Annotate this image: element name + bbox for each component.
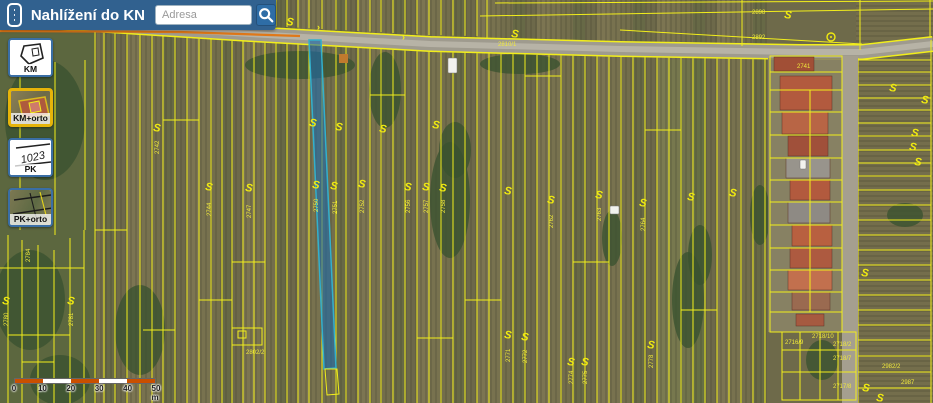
layer-label: KM+orto: [11, 113, 50, 124]
app-window: ››SSSSSSSSSSSSSSSSSSSSSSSSSSSSSSSSSSSSS2…: [0, 0, 933, 403]
parcel-number: 2718/7: [833, 356, 852, 362]
scale-label: 10: [38, 384, 47, 393]
search-button[interactable]: [256, 4, 276, 26]
header-bar: Nahlížení do KN: [0, 0, 276, 30]
building-roof: [790, 248, 832, 268]
vehicle: [610, 206, 619, 214]
shed: [339, 54, 348, 63]
parcel-number: 2775: [583, 370, 589, 384]
app-title: Nahlížení do KN: [31, 7, 145, 24]
scale-label: 20: [66, 384, 75, 393]
parcel-number: 2764: [641, 217, 647, 231]
parcel-number: 2772: [523, 349, 529, 363]
layer-button-km-orto[interactable]: KM+orto: [8, 88, 53, 127]
parcel-number: 2718/2: [833, 342, 852, 348]
scale-label: 50 m: [152, 384, 161, 402]
address-search-input[interactable]: [155, 5, 252, 25]
layer-label: KM: [10, 64, 51, 75]
scale-bar: 01020304050 m: [14, 378, 156, 395]
layer-button-pk-orto[interactable]: PK+orto: [8, 188, 53, 227]
parcel-number: 2756: [406, 199, 412, 213]
parcel-number: 2717/8: [833, 384, 852, 390]
parcel-number: 2802/2: [246, 350, 265, 356]
scale-segment: [99, 379, 127, 383]
svg-text:›: ›: [317, 22, 320, 32]
scale-label: 30: [95, 384, 104, 393]
parcel-number: 2780: [4, 312, 10, 326]
scale-label: 0: [12, 384, 16, 393]
parcel-number: 2742: [155, 140, 161, 154]
menu-button[interactable]: [7, 3, 22, 27]
parcel-number: 2771: [506, 348, 512, 362]
parcel-number: 2763: [597, 207, 603, 221]
parcel-number: 2892: [752, 35, 766, 41]
scale-bar-labels: 01020304050 m: [14, 384, 156, 395]
building-roof: [780, 76, 832, 110]
parcel-number: 2752: [360, 199, 366, 213]
parcel-number: 2716/9: [785, 340, 804, 346]
scale-segment: [71, 379, 99, 383]
parcel-number: 2741: [797, 64, 811, 70]
building-roof: [796, 314, 824, 326]
vehicle: [448, 58, 457, 73]
building-roof: [792, 225, 832, 246]
scale-label: 40: [123, 384, 132, 393]
parcel-number: 2750: [314, 198, 320, 212]
parcel-number: 2758: [441, 199, 447, 213]
parcel-number: 2747: [247, 204, 253, 218]
scale-segment: [15, 379, 43, 383]
map-canvas[interactable]: ››SSSSSSSSSSSSSSSSSSSSSSSSSSSSSSSSSSSSS2…: [0, 0, 933, 403]
parcel-number: 2784: [26, 248, 32, 262]
parcel-number: 2774: [569, 370, 575, 384]
parcel-number: 2778: [649, 354, 655, 368]
parcel-number: 2810/1: [498, 42, 517, 48]
parcel-number: 2898: [752, 10, 766, 16]
building-roof: [792, 292, 830, 310]
vehicle: [800, 160, 806, 169]
layer-button-pk[interactable]: 1023 PK: [8, 138, 53, 177]
parcel-number: 2744: [207, 202, 213, 216]
building-roof: [788, 202, 830, 223]
parcel-number: 2718/10: [812, 334, 834, 340]
building-roof: [788, 136, 828, 156]
parcel-number: 2751: [333, 200, 339, 214]
layer-button-km[interactable]: KM: [8, 38, 53, 77]
parcel-number: 2987: [901, 380, 915, 386]
scale-segment: [127, 379, 155, 383]
parcel-number: 2982/2: [882, 364, 901, 370]
layer-switcher: KM KM+orto 1023 PK: [8, 38, 53, 227]
building-roof: [786, 158, 830, 178]
search-icon: [257, 6, 275, 24]
scale-segment: [43, 379, 71, 383]
layer-label: PK: [10, 164, 51, 175]
layer-label: PK+orto: [10, 214, 51, 225]
building-roof: [782, 112, 828, 134]
parcel-number: 2781: [69, 312, 75, 326]
parcel-number: 2762: [549, 214, 555, 228]
parcel-number: 2757: [424, 199, 430, 213]
